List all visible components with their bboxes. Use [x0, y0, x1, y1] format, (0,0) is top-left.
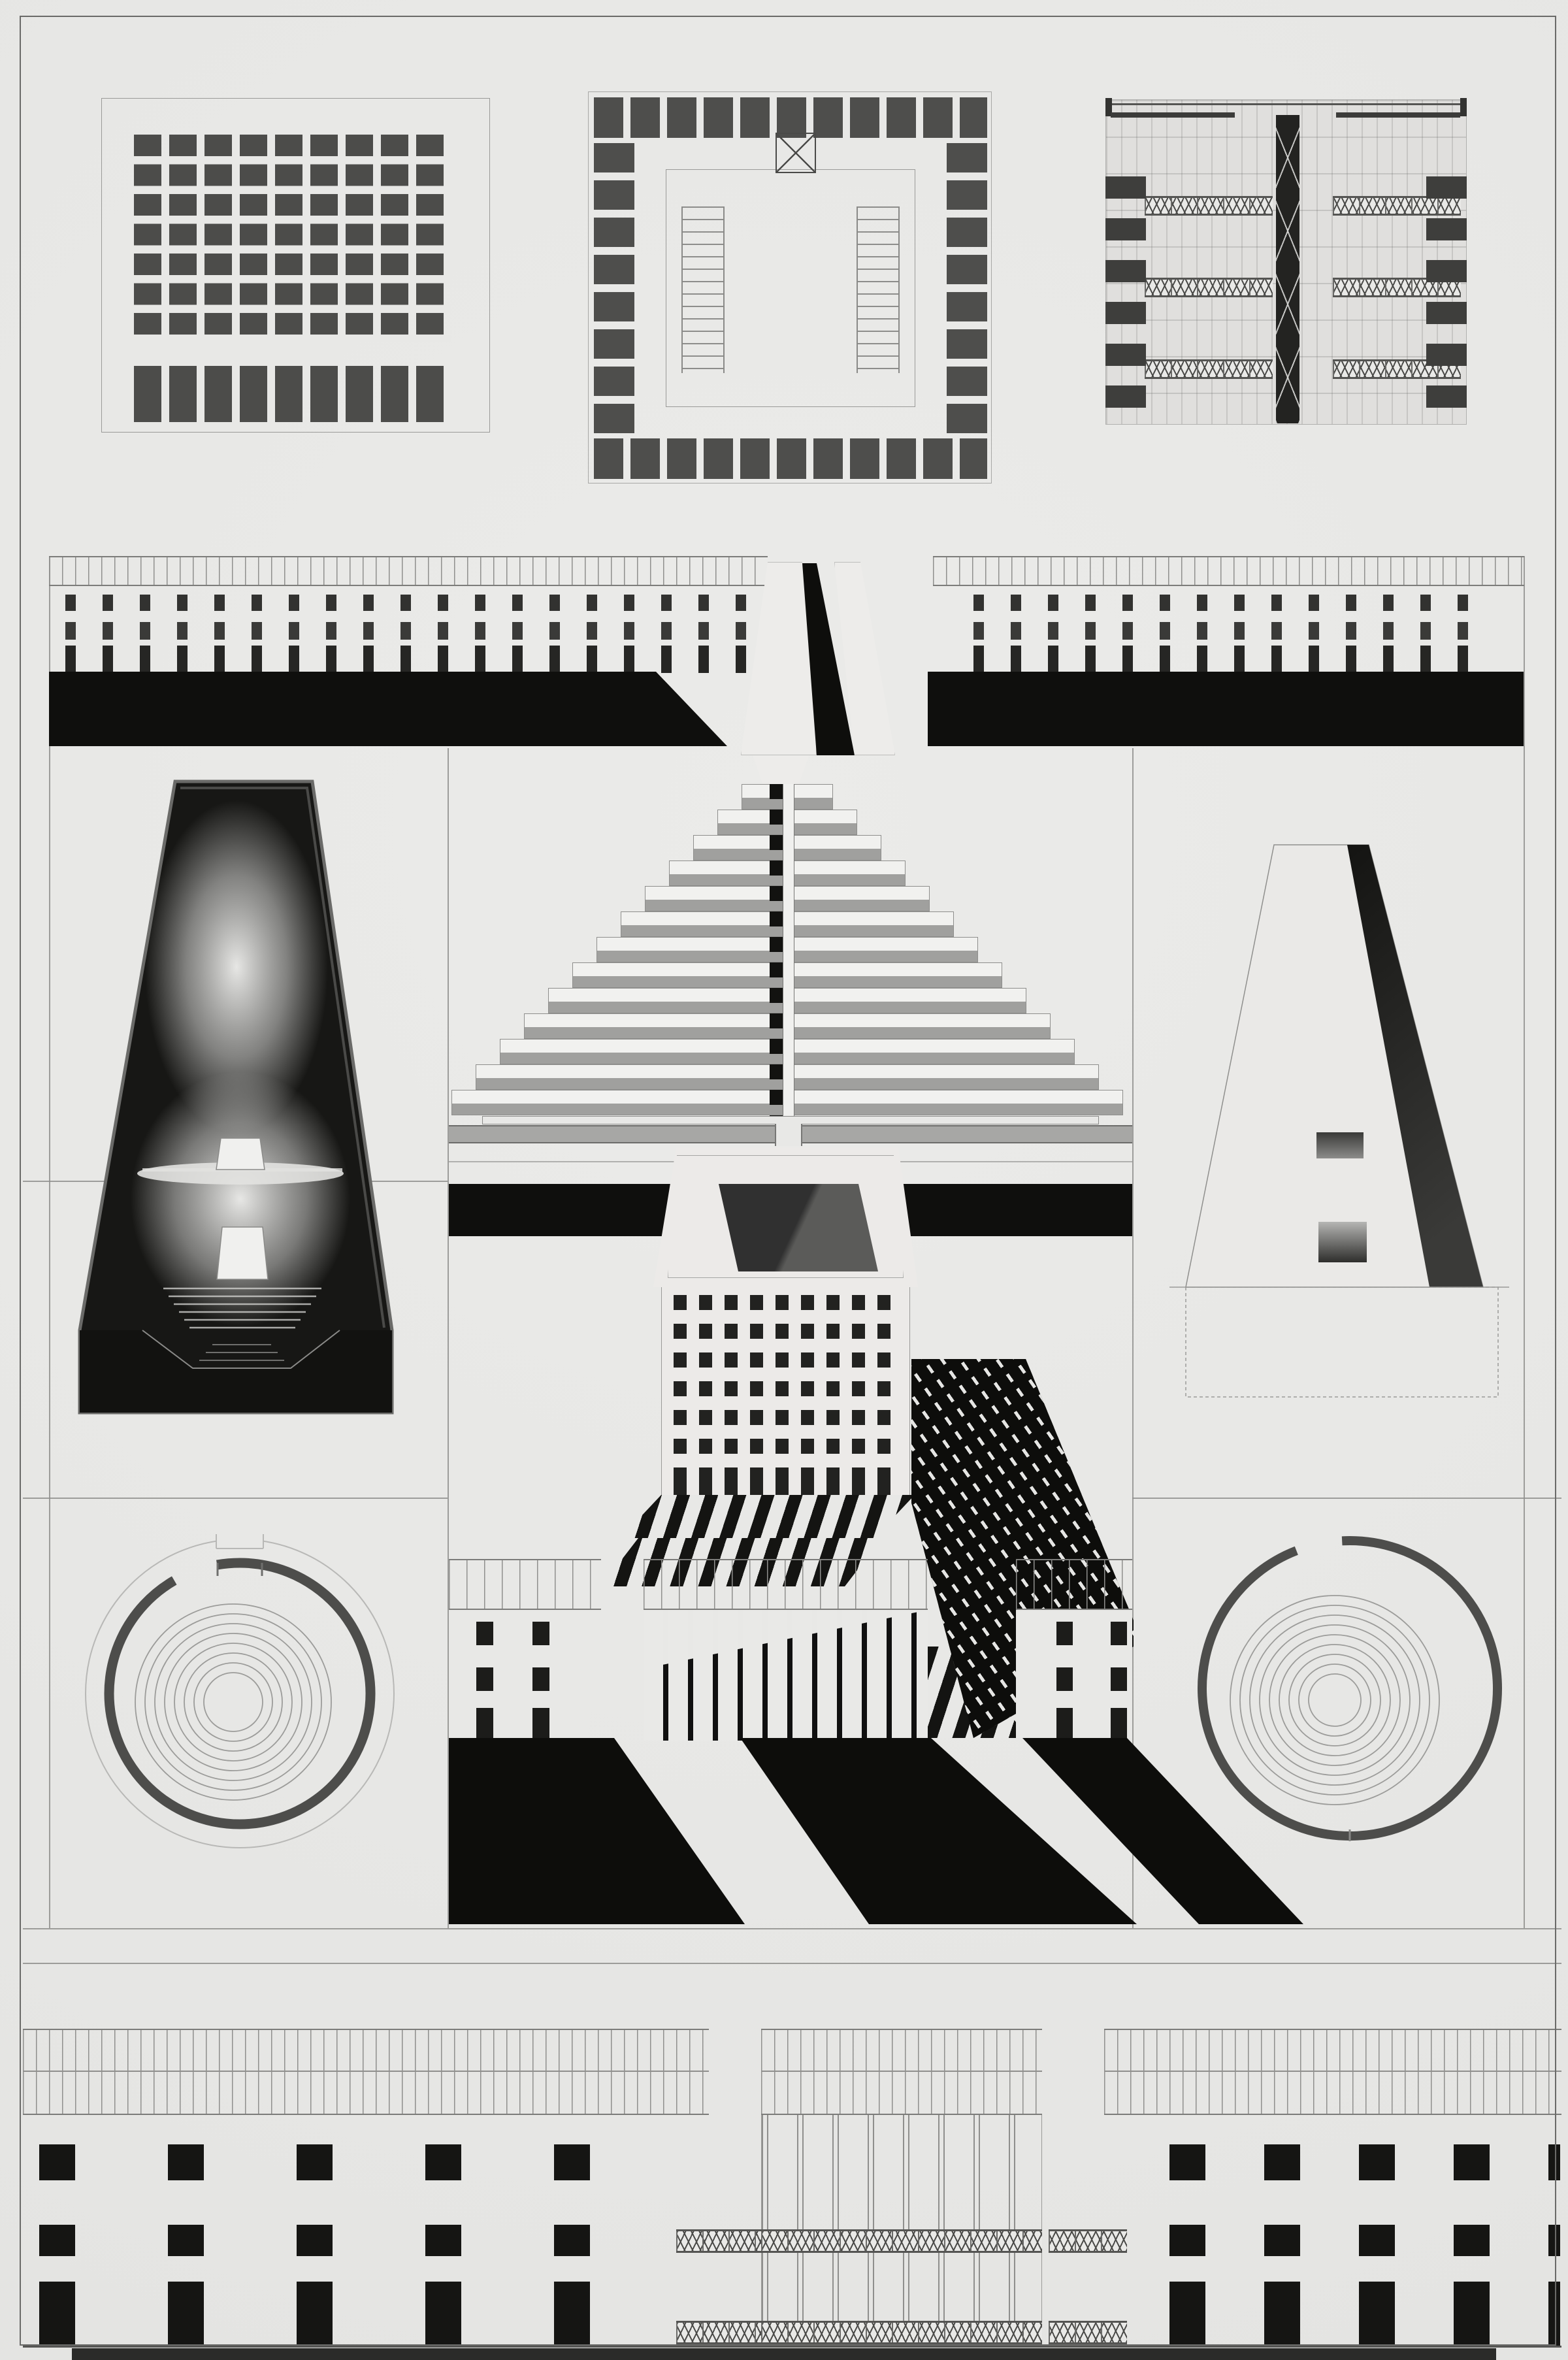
roof-colonnade-right: [933, 556, 1524, 586]
rail-xband: [1049, 2229, 1127, 2253]
pavilion-window-row: [674, 1324, 902, 1339]
pavilion-window-row-tall: [674, 1467, 902, 1496]
amphitheatre-plan-right: [1175, 1504, 1527, 1870]
truss-band: [1145, 278, 1273, 297]
amphitheatre-plan-left: [62, 1503, 418, 1869]
wing-parapet-center: [644, 1559, 928, 1610]
base-parapet-center-rail: [761, 2071, 1042, 2072]
courtyard-piers-left: [594, 143, 634, 433]
courtyard-piers-right: [947, 143, 987, 433]
bay-section-parapet-left: [1111, 112, 1235, 118]
base-window-row-3-right: [1169, 2282, 1560, 2347]
stair-run-left: [681, 206, 725, 373]
wing-parapet-left: [449, 1559, 601, 1610]
pavilion-window-row: [674, 1410, 902, 1425]
shadow-band-left: [49, 672, 727, 746]
shadow-mass-left: [449, 1738, 746, 1924]
base-parapet-left-rail: [23, 2071, 709, 2072]
rule-circle-right-top: [1132, 1498, 1561, 1499]
wing-window: [476, 1667, 493, 1691]
roof-colonnade-left: [49, 556, 768, 586]
truss-band: [1145, 359, 1273, 379]
ground-line: [23, 2346, 1561, 2348]
side-pier-stack-left: [1105, 176, 1146, 425]
pavilion-facade: [661, 1287, 910, 1496]
pier-colonnade: [644, 1610, 928, 1741]
striped-shadow-1: [621, 1495, 915, 1538]
rule-bottom-1: [23, 1928, 1561, 1929]
column-grid-tall-row: [134, 366, 451, 422]
base-window-row-3-left: [39, 2282, 591, 2347]
pavilion-window-row: [674, 1352, 902, 1368]
window-row-2-left: [65, 622, 748, 640]
base-parapet-center: [761, 2029, 1042, 2115]
column-grid: [134, 135, 451, 342]
pavilion-window-row: [674, 1439, 902, 1454]
stair-run-right: [857, 206, 900, 373]
rail-xband: [761, 2321, 1042, 2344]
base-parapet-right-rail: [1104, 2071, 1561, 2072]
terrace-bar-slot: [775, 1124, 802, 1146]
rail-xband: [1049, 2321, 1127, 2344]
drawing-sheet: [0, 0, 1568, 2360]
rooflight-xbox: [776, 133, 816, 173]
wing-window: [1056, 1667, 1073, 1691]
pyramid-stair-slot: [783, 784, 794, 1116]
base-window-row-2-right: [1169, 2225, 1560, 2256]
base-window-row-1-left: [39, 2144, 591, 2180]
rule-circle-left-top: [23, 1498, 448, 1499]
wing-window: [1111, 1622, 1127, 1645]
courtyard-piers-top: [594, 97, 987, 138]
rail-xband: [761, 2229, 1042, 2253]
pyramid-slot-notches: [770, 784, 783, 1116]
wing-window: [476, 1708, 493, 1738]
panel-courtyard-plan: [588, 91, 992, 483]
bay-section-cornice: [1105, 103, 1467, 105]
window-row-1-left: [65, 595, 748, 611]
bay-section-parapet-right: [1336, 112, 1460, 118]
sheet-edge-shadow: [72, 2348, 1496, 2360]
window-row-1-right: [973, 595, 1470, 611]
pavilion-window-row: [674, 1295, 902, 1310]
window-row-2-right: [973, 622, 1470, 640]
base-window-row-2-left: [39, 2225, 591, 2256]
wing-window: [1111, 1708, 1127, 1738]
truss-band: [1145, 196, 1273, 216]
panel-divider-left: [49, 556, 50, 1928]
funnel-tower-section: [65, 778, 412, 1418]
window-row-3-left: [65, 646, 748, 673]
wing-window: [476, 1622, 493, 1645]
shadow-band-right: [928, 672, 1524, 746]
wing-parapet-right: [1016, 1559, 1132, 1610]
pavilion-skylight: [716, 1184, 881, 1271]
wing-window: [532, 1708, 549, 1738]
base-window-row-1-right: [1169, 2144, 1560, 2180]
wing-window: [1111, 1667, 1127, 1691]
wing-window: [532, 1667, 549, 1691]
bay-section-bracket-right: [1460, 98, 1467, 116]
courtyard-piers-bottom: [594, 438, 987, 479]
base-parapet-left: [23, 2029, 709, 2115]
side-pier-stack-right: [1426, 176, 1467, 425]
braced-shaft: [1276, 115, 1299, 423]
rule-bottom-2: [23, 1963, 1561, 1964]
wing-building-left: [449, 1610, 588, 1738]
panel-divider-center-left: [448, 748, 449, 1928]
pavilion-window-row: [674, 1381, 902, 1396]
wing-window: [1056, 1708, 1073, 1738]
base-parapet-right: [1104, 2029, 1561, 2115]
wing-window: [532, 1622, 549, 1645]
wing-window: [1056, 1622, 1073, 1645]
monument-outline: [1169, 840, 1509, 1405]
window-row-3-right: [973, 646, 1470, 673]
